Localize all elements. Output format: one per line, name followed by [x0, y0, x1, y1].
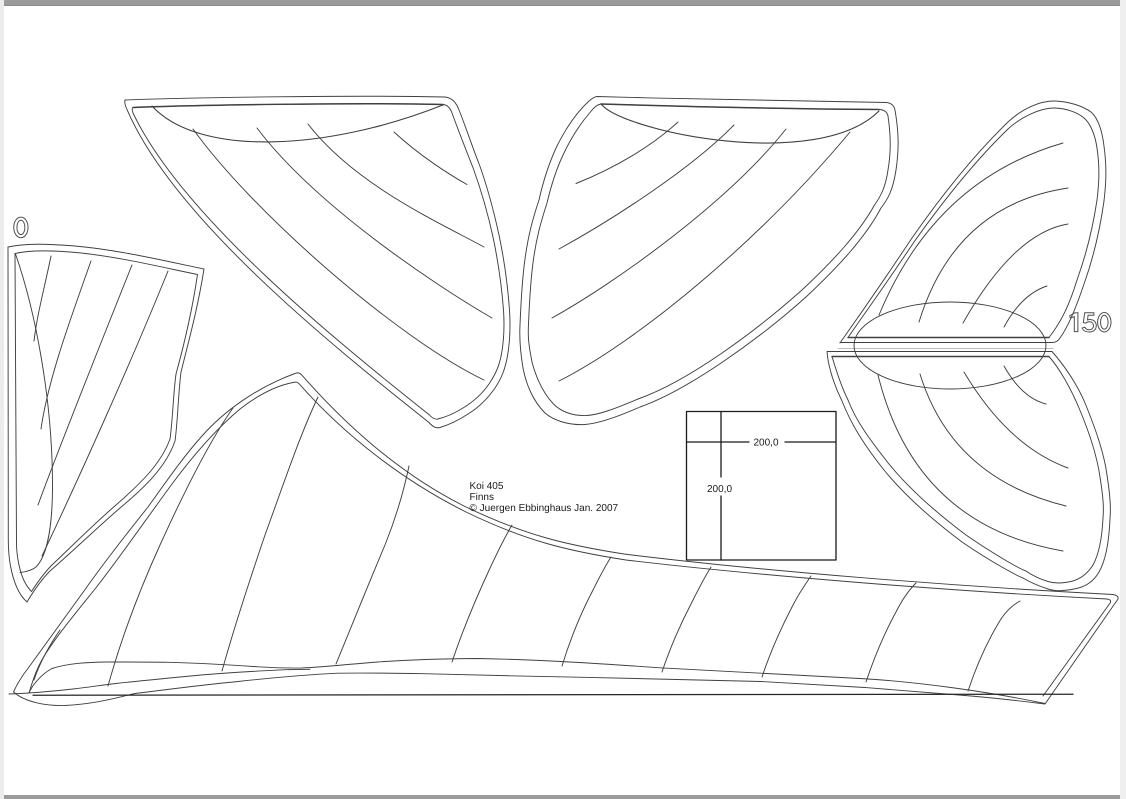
svg-text:© Juergen Ebbinghaus Jan. 2007: © Juergen Ebbinghaus Jan. 2007 — [470, 503, 619, 514]
svg-text:Finns: Finns — [470, 492, 494, 503]
svg-text:200,0: 200,0 — [707, 484, 732, 495]
svg-text:Koi 405: Koi 405 — [470, 481, 504, 492]
svg-text:200,0: 200,0 — [754, 438, 779, 449]
